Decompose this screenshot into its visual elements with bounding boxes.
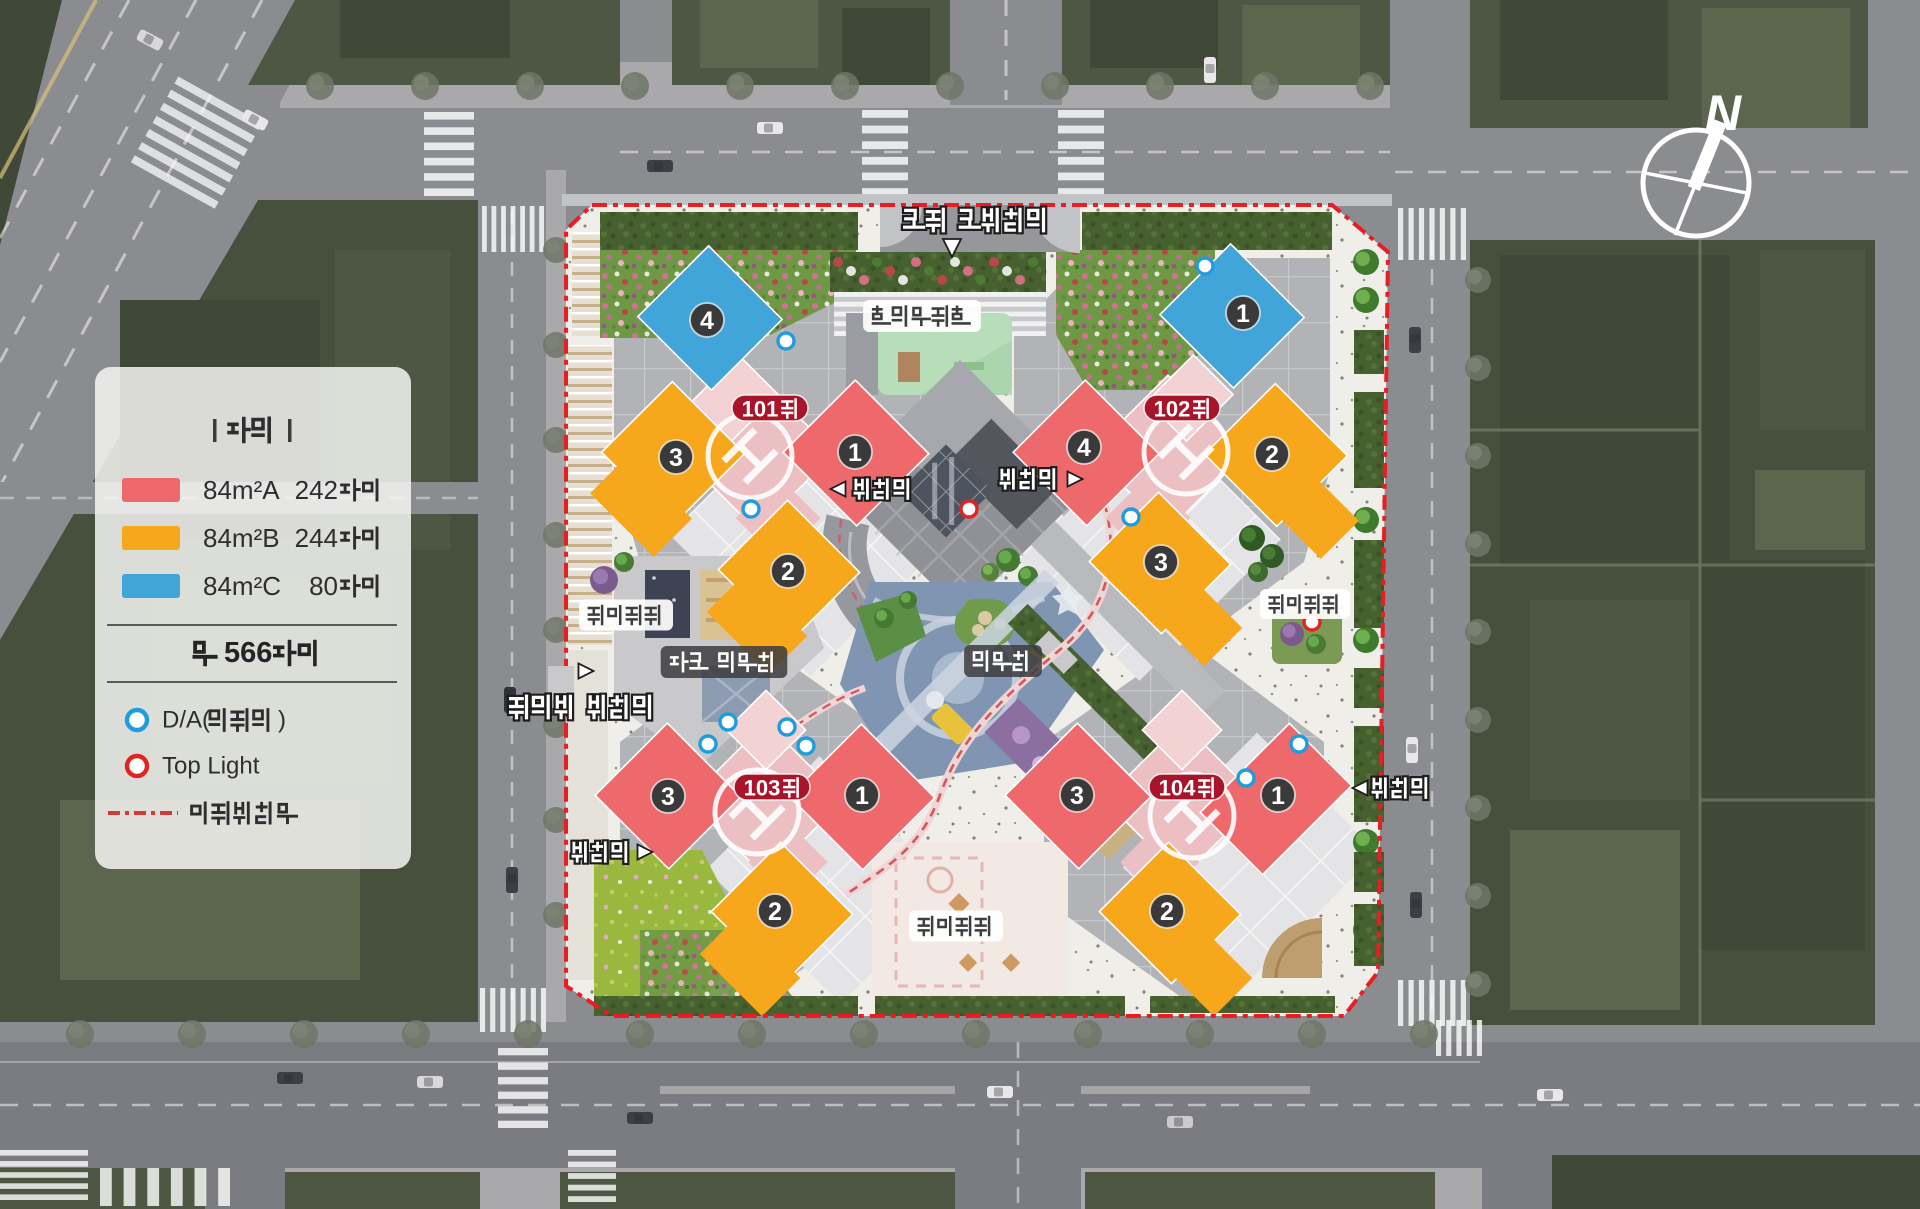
svg-text:): )	[278, 707, 286, 734]
svg-text:3: 3	[1070, 782, 1084, 810]
svg-text:244: 244	[295, 523, 338, 553]
svg-text:84m²C: 84m²C	[203, 571, 281, 601]
svg-text:103: 103	[744, 776, 781, 801]
svg-text:3: 3	[661, 783, 675, 811]
svg-text:1: 1	[1236, 300, 1250, 328]
svg-text:D/A(: D/A(	[162, 707, 210, 734]
svg-text:3: 3	[669, 444, 683, 472]
svg-text:102: 102	[1154, 397, 1191, 422]
svg-text:101: 101	[742, 397, 779, 422]
svg-text:2: 2	[1265, 441, 1279, 469]
svg-text:1: 1	[855, 782, 869, 810]
svg-text:84m²A: 84m²A	[203, 475, 280, 505]
svg-text:2: 2	[1160, 898, 1174, 926]
svg-text:Top Light: Top Light	[162, 753, 260, 780]
svg-text:N: N	[1705, 85, 1742, 141]
svg-text:2: 2	[768, 898, 782, 926]
svg-text:80: 80	[309, 571, 338, 601]
svg-text:4: 4	[700, 307, 714, 335]
svg-text:1: 1	[848, 439, 862, 467]
svg-text:566: 566	[224, 637, 272, 669]
svg-text:3: 3	[1154, 549, 1168, 577]
svg-text:84m²B: 84m²B	[203, 523, 280, 553]
svg-text:4: 4	[1077, 434, 1091, 462]
svg-text:2: 2	[781, 558, 795, 586]
svg-text:104: 104	[1159, 776, 1196, 801]
svg-text:1: 1	[1271, 782, 1285, 810]
svg-text:242: 242	[295, 475, 338, 505]
